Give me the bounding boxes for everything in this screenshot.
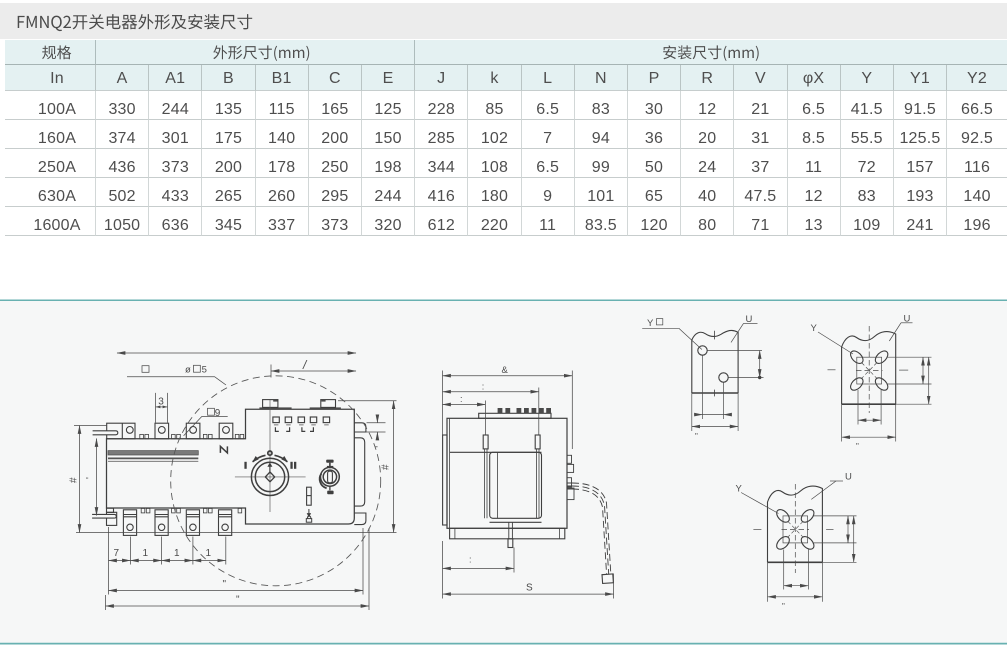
svg-text:1: 1 [143, 548, 149, 559]
svg-text::: : [469, 555, 472, 565]
svg-text::: : [482, 382, 485, 392]
svg-text:": " [223, 579, 227, 590]
svg-text:&: & [502, 365, 509, 376]
svg-text:": " [236, 595, 240, 606]
svg-text:1: 1 [174, 548, 180, 559]
svg-text:#: # [381, 464, 392, 470]
svg-text:7: 7 [114, 548, 120, 559]
svg-text:": " [782, 602, 785, 611]
svg-text:U: U [845, 472, 852, 483]
svg-text::: : [460, 394, 463, 404]
svg-text:': ' [85, 477, 96, 479]
svg-text:Y: Y [811, 323, 818, 334]
svg-text:5: 5 [202, 365, 207, 376]
svg-text:": " [695, 432, 698, 441]
svg-text:": " [856, 442, 859, 451]
svg-text:Y: Y [647, 318, 654, 329]
svg-text:ø: ø [185, 365, 191, 376]
svg-text:S: S [526, 583, 533, 594]
svg-text:9: 9 [215, 408, 221, 419]
svg-text:#: # [69, 477, 80, 483]
svg-text:1: 1 [206, 548, 212, 559]
